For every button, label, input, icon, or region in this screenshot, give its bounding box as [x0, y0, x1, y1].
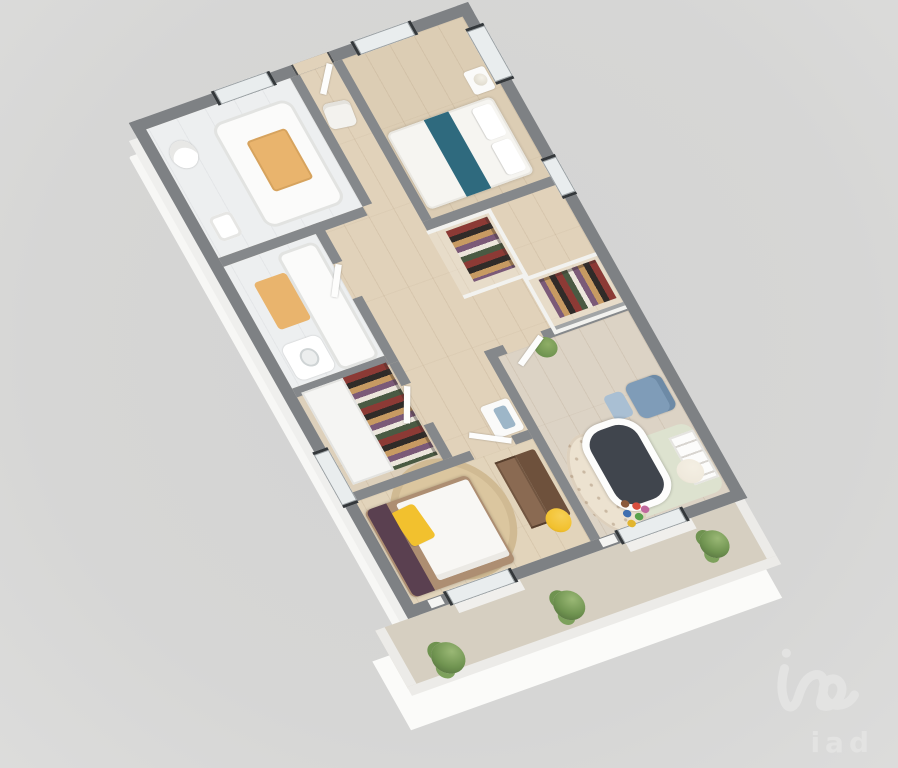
iad-logo-text: iad: [770, 726, 888, 759]
dressing-door-leaf: [404, 386, 411, 424]
iad-watermark: iad: [770, 638, 888, 760]
iad-logo-glyph: [770, 638, 888, 730]
floorplan-3d-render: iad: [0, 0, 898, 768]
